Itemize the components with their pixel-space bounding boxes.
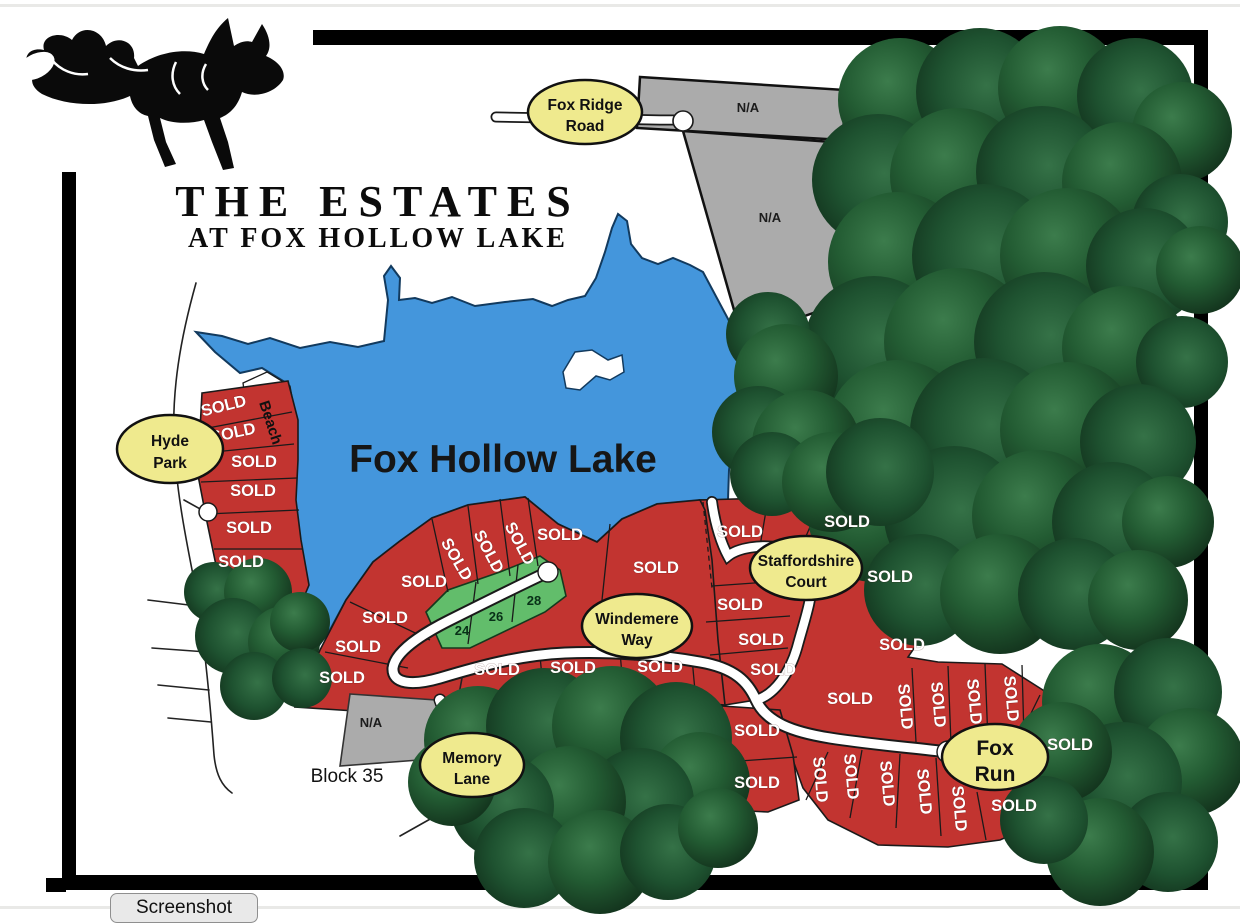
- street-label-memory-lane: Memory Lane: [420, 733, 524, 797]
- svg-text:Way: Way: [621, 632, 653, 649]
- sold-label: SOLD: [362, 609, 408, 627]
- block-35-label: Block 35: [311, 766, 384, 787]
- lake-name-label: Fox Hollow Lake: [349, 438, 657, 481]
- sold-label: SOLD: [550, 659, 596, 677]
- sold-label: SOLD: [867, 568, 913, 586]
- sold-label: SOLD: [218, 553, 264, 571]
- available-lot-number: 28: [527, 593, 541, 608]
- sold-label: SOLD: [717, 523, 763, 541]
- street-label-fox-run: Fox Run: [942, 724, 1048, 790]
- sold-label: SOLD: [537, 526, 583, 544]
- street-label-hyde-park: Hyde Park: [117, 415, 223, 483]
- svg-text:Road: Road: [566, 118, 605, 135]
- sold-label: SOLD: [231, 453, 277, 471]
- sold-label: SOLD: [738, 631, 784, 649]
- map-title: THE ESTATES: [175, 177, 581, 226]
- sold-label: SOLD: [734, 774, 780, 792]
- map-subtitle: AT FOX HOLLOW LAKE: [188, 223, 568, 254]
- sold-label: SOLD: [717, 596, 763, 614]
- available-lot-number: 24: [455, 623, 470, 638]
- sold-label: SOLD: [401, 573, 447, 591]
- sold-label: SOLD: [750, 661, 796, 679]
- sold-label: SOLD: [319, 669, 365, 687]
- svg-text:Lane: Lane: [454, 771, 491, 788]
- svg-text:Hyde: Hyde: [151, 433, 189, 450]
- na-label: N/A: [737, 100, 760, 115]
- na-label: N/A: [759, 210, 782, 225]
- sold-label: SOLD: [827, 690, 873, 708]
- svg-text:Windemere: Windemere: [595, 611, 679, 628]
- sold-label: SOLD: [1047, 736, 1093, 754]
- estates-map: SOLD SOLD SOLD SOLD SOLD SOLD SOLD SOLD …: [0, 0, 1240, 915]
- sold-label: SOLD: [226, 519, 272, 537]
- sold-label: SOLD: [230, 482, 276, 500]
- sold-label: SOLD: [335, 638, 381, 656]
- fox-logo: [13, 18, 284, 170]
- street-label-staffordshire-court: Staffordshire Court: [750, 536, 862, 600]
- svg-text:Staffordshire: Staffordshire: [758, 553, 855, 570]
- available-lot-number: 26: [489, 609, 503, 624]
- street-label-fox-ridge-road: Fox Ridge Road: [528, 80, 642, 144]
- windemere-culdesac: [538, 562, 558, 582]
- sold-label: SOLD: [633, 559, 679, 577]
- hyde-culdesac: [199, 503, 217, 521]
- sold-label: SOLD: [824, 513, 870, 531]
- svg-text:Park: Park: [153, 455, 187, 472]
- na-label: N/A: [360, 715, 383, 730]
- sold-label: SOLD: [474, 661, 520, 679]
- svg-text:Run: Run: [975, 763, 1016, 786]
- svg-text:Fox Ridge: Fox Ridge: [548, 97, 623, 114]
- sold-label: SOLD: [991, 797, 1037, 815]
- svg-text:Fox: Fox: [976, 737, 1014, 760]
- svg-text:Memory: Memory: [442, 750, 502, 767]
- svg-text:Court: Court: [785, 574, 826, 591]
- sold-label: SOLD: [734, 722, 780, 740]
- screenshot-button[interactable]: Screenshot: [110, 893, 258, 923]
- fox-ridge-culdesac: [673, 111, 693, 131]
- sold-label: SOLD: [637, 658, 683, 676]
- sold-label: SOLD: [879, 636, 925, 654]
- street-label-windemere-way: Windemere Way: [582, 594, 692, 658]
